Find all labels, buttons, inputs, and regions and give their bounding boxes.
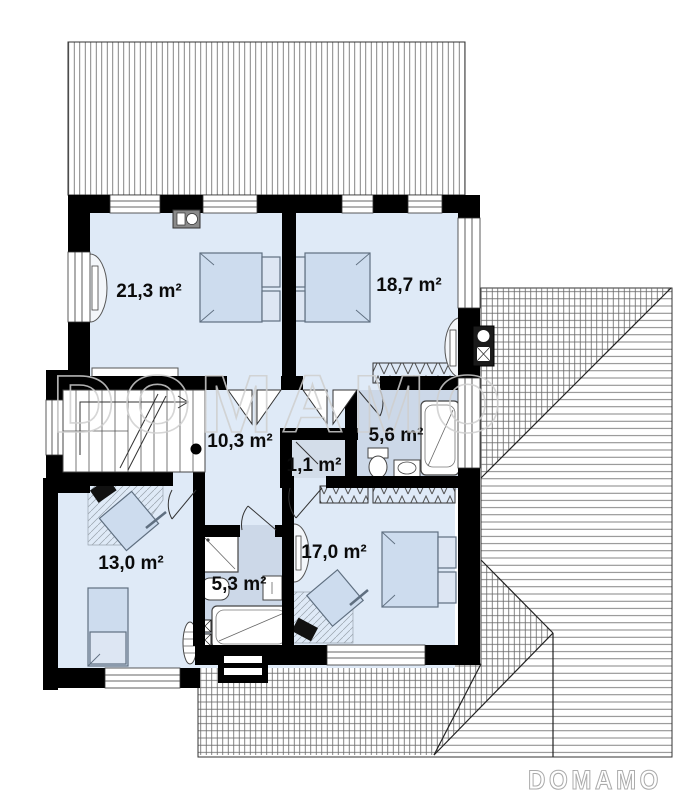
- room-label-13: 13,0 m²: [98, 553, 163, 574]
- window-left-room21: [68, 252, 90, 322]
- window-right-room18: [458, 218, 480, 308]
- shower-bottom-bath: [202, 535, 238, 572]
- double-bed-room18: [287, 253, 370, 322]
- room-label-17: 17,0 m²: [301, 542, 366, 563]
- window-top-3: [342, 195, 373, 213]
- wall-bath53-top-2: [275, 525, 294, 537]
- wall-between-bedrooms: [282, 213, 296, 378]
- wall-bath53-right: [282, 476, 294, 665]
- floor-plan-page: 21,3 m² 18,7 m² 10,3 m² 1,1 m² 5,6 m² 13…: [0, 0, 679, 800]
- double-bed-room21: [200, 253, 280, 322]
- window-bottom-room17: [327, 645, 425, 665]
- room-label-21: 21,3 m²: [116, 281, 181, 302]
- chimney-block: [218, 650, 268, 683]
- sink-top-bath: [394, 460, 420, 477]
- window-top-4: [408, 195, 442, 213]
- toilet-top-bath: [368, 448, 388, 478]
- room-label-1: 1,1 m²: [287, 455, 342, 476]
- window-bottom-room13: [105, 668, 180, 688]
- floor-plan-drawing: 21,3 m² 18,7 m² 10,3 m² 1,1 m² 5,6 m² 13…: [0, 0, 679, 800]
- wardrobe-room17-left: [320, 486, 368, 503]
- vent-block-icon: [173, 210, 200, 228]
- window-top-1: [110, 195, 160, 213]
- single-bed-room13: [88, 588, 128, 666]
- window-top-2: [203, 195, 257, 213]
- wall-room13-right: [193, 486, 205, 646]
- brand-logo-text: DOMAMO: [528, 765, 662, 795]
- bathtub-bottom-bath: [212, 606, 290, 648]
- watermark-text: DOMAMO: [52, 359, 510, 450]
- room-label-5-3: 5,3 m²: [212, 574, 267, 595]
- wall-bath53-top-1: [205, 525, 240, 537]
- room-label-18: 18,7 m²: [376, 275, 441, 296]
- roof-top: [68, 42, 465, 195]
- wall-left-lower: [43, 478, 58, 690]
